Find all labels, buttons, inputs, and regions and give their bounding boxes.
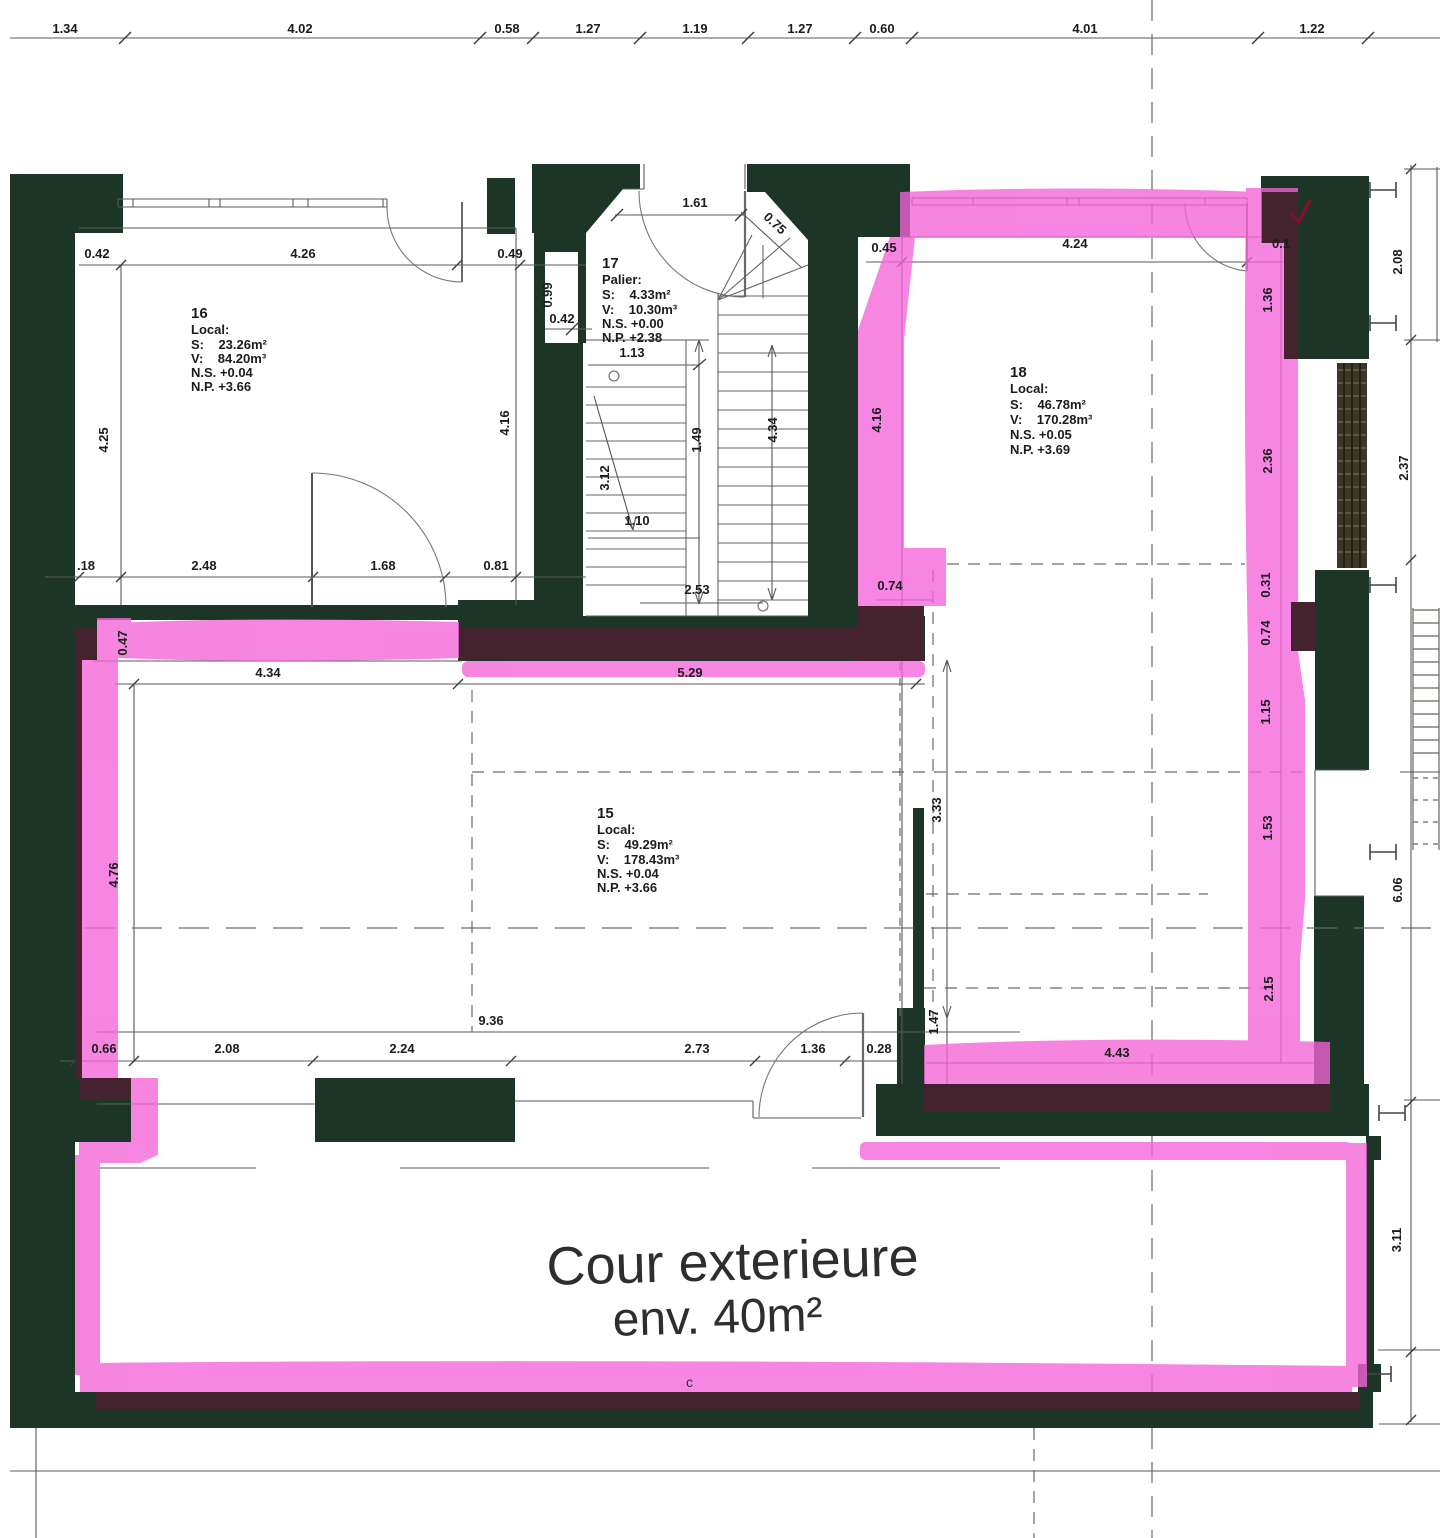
svg-text:2.53: 2.53	[684, 582, 709, 597]
svg-text:0.47: 0.47	[115, 630, 130, 655]
svg-text:1.19: 1.19	[682, 21, 707, 36]
svg-text:1.36: 1.36	[800, 1041, 825, 1056]
svg-text:5.29: 5.29	[677, 665, 702, 680]
svg-text:4.34: 4.34	[255, 665, 281, 680]
svg-text:1.13: 1.13	[619, 345, 644, 360]
svg-text:4.76: 4.76	[106, 862, 121, 887]
svg-text:.18: .18	[77, 558, 95, 573]
svg-text:3.12: 3.12	[597, 465, 612, 490]
svg-text:0.28: 0.28	[866, 1041, 891, 1056]
svg-text:V: 10.30m³: V: 10.30m³	[602, 302, 678, 317]
svg-text:0.42: 0.42	[549, 311, 574, 326]
svg-text:V: 170.28m³: V: 170.28m³	[1010, 412, 1093, 427]
svg-text:1.36: 1.36	[1260, 287, 1275, 312]
svg-text:2.15: 2.15	[1261, 976, 1276, 1001]
svg-text:16: 16	[191, 305, 208, 322]
svg-text:S: 46.78m²: S: 46.78m²	[1010, 397, 1087, 412]
svg-text:15: 15	[597, 805, 614, 822]
svg-text:Local:: Local:	[1010, 381, 1048, 396]
svg-text:1.53: 1.53	[1260, 815, 1275, 840]
svg-text:N.S. +0.04: N.S. +0.04	[191, 365, 254, 380]
svg-text:9.36: 9.36	[478, 1013, 503, 1028]
svg-text:4.26: 4.26	[290, 246, 315, 261]
svg-text:17: 17	[602, 255, 619, 272]
svg-text:N.P. +3.66: N.P. +3.66	[191, 379, 251, 394]
svg-text:N.P. +3.66: N.P. +3.66	[597, 880, 657, 895]
svg-text:2.37: 2.37	[1396, 455, 1411, 480]
svg-text:2.73: 2.73	[684, 1041, 709, 1056]
svg-text:env. 40m²: env. 40m²	[612, 1288, 823, 1346]
svg-text:S: 49.29m²: S: 49.29m²	[597, 837, 674, 852]
svg-text:S: 23.26m²: S: 23.26m²	[191, 337, 268, 352]
svg-text:1.68: 1.68	[370, 558, 395, 573]
svg-text:18: 18	[1010, 364, 1027, 381]
svg-text:0.74: 0.74	[877, 578, 903, 593]
svg-text:Local:: Local:	[191, 322, 229, 337]
svg-text:0.81: 0.81	[483, 558, 508, 573]
svg-text:N.P. +2.38: N.P. +2.38	[602, 330, 662, 345]
svg-text:0.1: 0.1	[1272, 236, 1290, 251]
svg-text:4.34: 4.34	[765, 417, 780, 443]
svg-text:4.16: 4.16	[869, 407, 884, 432]
svg-text:3.33: 3.33	[929, 797, 944, 822]
svg-text:V: 178.43m³: V: 178.43m³	[597, 852, 680, 867]
svg-text:6.06: 6.06	[1390, 877, 1405, 902]
svg-text:1.34: 1.34	[52, 21, 78, 36]
svg-text:1.27: 1.27	[575, 21, 600, 36]
svg-text:2.48: 2.48	[191, 558, 216, 573]
svg-text:2.08: 2.08	[1390, 249, 1405, 274]
svg-text:4.24: 4.24	[1062, 236, 1088, 251]
svg-text:1.27: 1.27	[787, 21, 812, 36]
svg-text:Palier:: Palier:	[602, 272, 642, 287]
svg-text:0.74: 0.74	[1258, 620, 1273, 646]
svg-text:1.10: 1.10	[624, 513, 649, 528]
svg-text:0.99: 0.99	[540, 282, 555, 307]
svg-text:3.11: 3.11	[1389, 1228, 1404, 1253]
svg-text:4.25: 4.25	[96, 427, 111, 452]
svg-text:2.24: 2.24	[389, 1041, 415, 1056]
svg-text:1.15: 1.15	[1258, 699, 1273, 724]
svg-text:Cour exterieure: Cour exterieure	[546, 1227, 920, 1297]
svg-text:4.01: 4.01	[1072, 21, 1097, 36]
svg-text:c: c	[686, 1374, 693, 1390]
svg-text:1.22: 1.22	[1299, 21, 1324, 36]
svg-text:1.47: 1.47	[926, 1009, 941, 1034]
svg-text:N.P. +3.69: N.P. +3.69	[1010, 442, 1070, 457]
svg-text:N.S. +0.04: N.S. +0.04	[597, 866, 660, 881]
svg-text:Local:: Local:	[597, 822, 635, 837]
svg-text:2.08: 2.08	[214, 1041, 239, 1056]
svg-text:2.36: 2.36	[1260, 448, 1275, 473]
svg-text:S: 4.33m²: S: 4.33m²	[602, 287, 671, 302]
svg-text:4.16: 4.16	[497, 410, 512, 435]
svg-text:4.02: 4.02	[287, 21, 312, 36]
svg-text:0.42: 0.42	[84, 246, 109, 261]
svg-text:0.45: 0.45	[871, 240, 896, 255]
svg-text:4.43: 4.43	[1104, 1045, 1129, 1060]
svg-text:0.66: 0.66	[91, 1041, 116, 1056]
svg-text:0.60: 0.60	[869, 21, 894, 36]
svg-text:V: 84.20m³: V: 84.20m³	[191, 351, 267, 366]
svg-text:0.49: 0.49	[497, 246, 522, 261]
svg-text:0.58: 0.58	[494, 21, 519, 36]
svg-text:N.S. +0.05: N.S. +0.05	[1010, 427, 1072, 442]
svg-text:1.49: 1.49	[689, 427, 704, 452]
svg-text:1.61: 1.61	[682, 195, 707, 210]
svg-text:N.S. +0.00: N.S. +0.00	[602, 316, 664, 331]
svg-text:0.31: 0.31	[1258, 572, 1273, 597]
